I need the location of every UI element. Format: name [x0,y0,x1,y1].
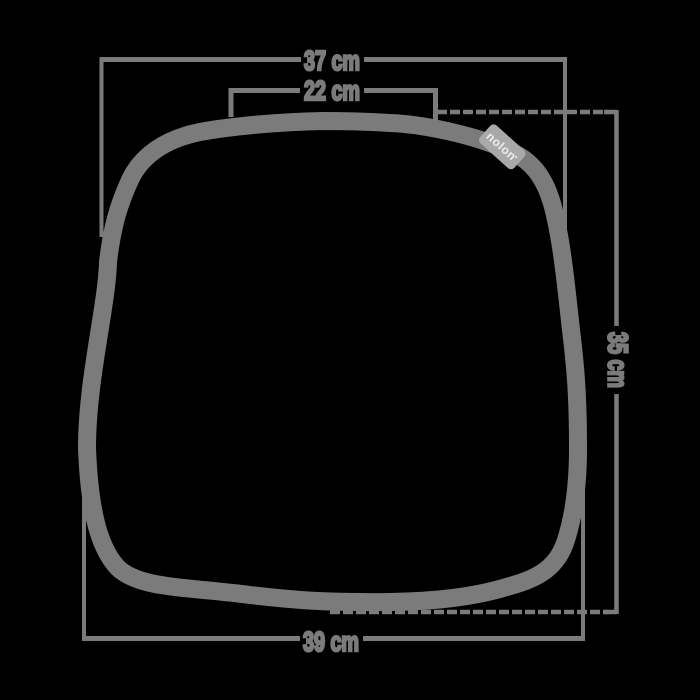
svg-text:35 cm: 35 cm [603,332,634,388]
svg-text:22 cm: 22 cm [304,75,360,106]
svg-text:39 cm: 39 cm [303,626,359,657]
svg-text:37 cm: 37 cm [304,45,360,76]
